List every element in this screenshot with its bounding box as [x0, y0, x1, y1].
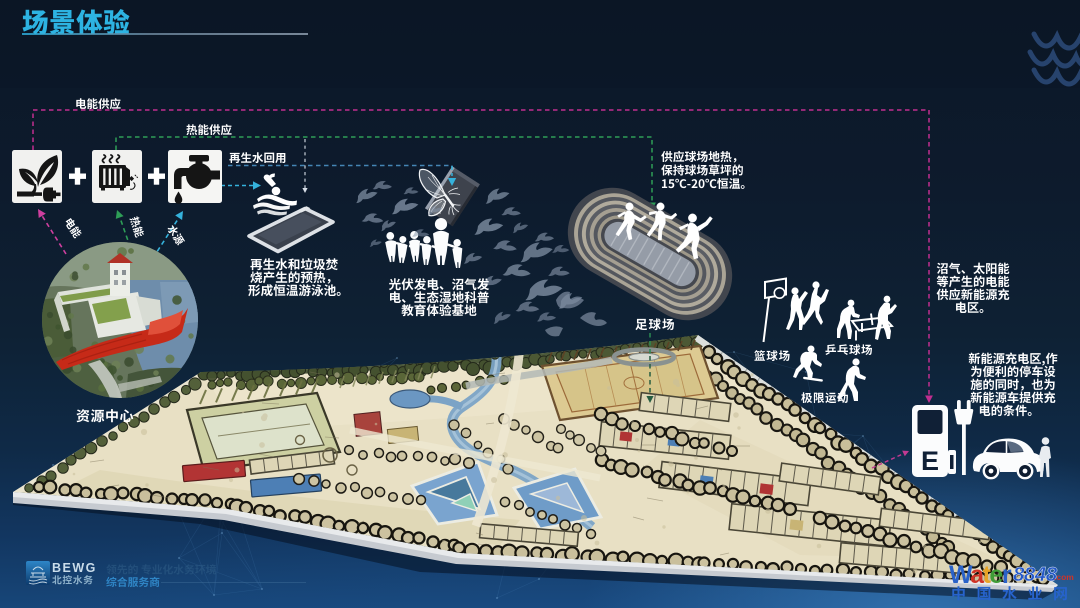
svg-text:.com: .com: [1054, 572, 1074, 582]
svg-text:E: E: [921, 446, 939, 476]
svg-text:BEWG: BEWG: [52, 561, 97, 575]
svg-text:8848: 8848: [1013, 563, 1058, 586]
svg-text:Water: Water: [949, 561, 1012, 589]
